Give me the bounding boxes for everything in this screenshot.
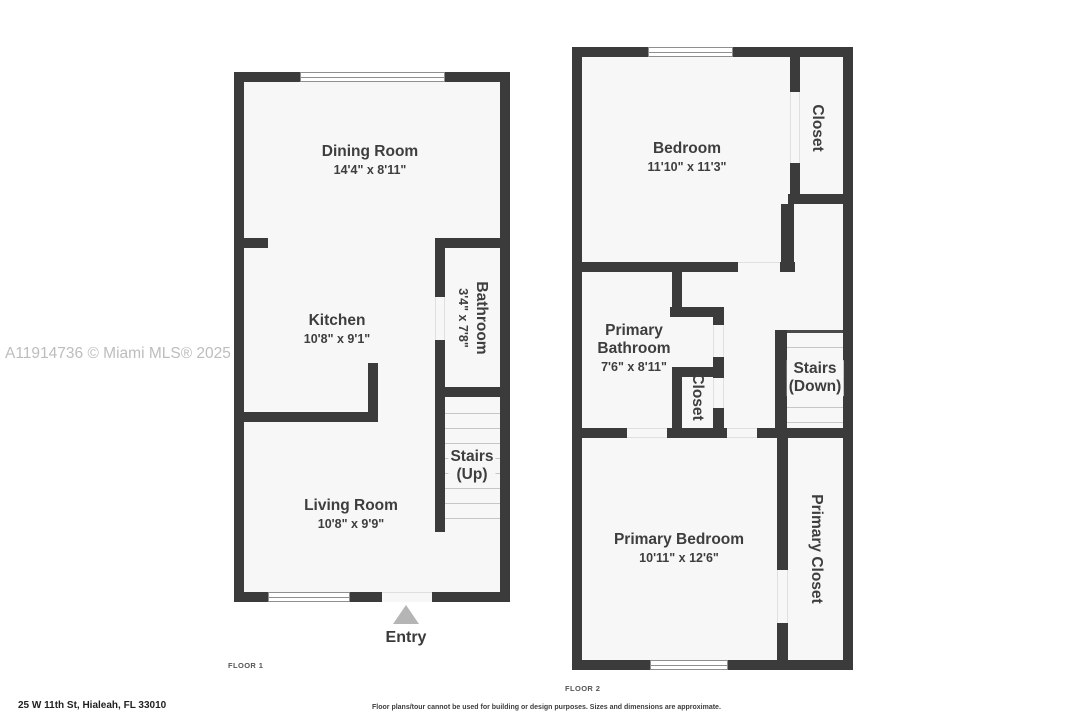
- room-name: Closet: [688, 373, 706, 420]
- room-name: Bathroom: [472, 281, 490, 354]
- stairs-direction: (Down): [787, 378, 844, 396]
- room-name: Primary Bathroom: [591, 322, 677, 358]
- floor2-caption: FLOOR 2: [565, 684, 600, 693]
- stairs-direction: (Up): [448, 466, 495, 484]
- wall-segment: [775, 330, 787, 438]
- wall-segment: [234, 238, 268, 248]
- room-label-bedroom: Bedroom 11'10" x 11'3": [648, 140, 727, 174]
- wall-segment: [432, 592, 510, 602]
- wall-segment: [368, 363, 378, 422]
- room-label-primary-bathroom: Primary Bathroom 7'6" x 8'11": [591, 322, 677, 374]
- wall-segment: [777, 438, 788, 570]
- door-threshold-line: [738, 262, 780, 263]
- room-name: Primary Bedroom: [614, 531, 744, 549]
- wall-segment: [788, 194, 853, 204]
- wall-segment: [350, 592, 382, 602]
- wall-segment: [500, 72, 510, 602]
- wall-segment: [572, 428, 627, 438]
- room-label-closet-top: Closet: [808, 104, 826, 151]
- door-threshold-line: [727, 437, 757, 438]
- wall-segment: [435, 387, 510, 397]
- wall-segment: [234, 412, 378, 422]
- floor1-caption: FLOOR 1: [228, 661, 263, 670]
- room-name: Primary Closet: [807, 494, 825, 603]
- room-dims: 14'4" x 8'11": [322, 163, 418, 177]
- room-label-kitchen: Kitchen 10'8" x 9'1": [304, 312, 370, 346]
- door-jamb-line: [435, 297, 436, 340]
- wall-segment: [777, 623, 788, 670]
- room-name: Closet: [808, 104, 826, 151]
- room-name: Kitchen: [304, 312, 370, 330]
- wall-segment: [572, 660, 650, 670]
- room-dims: 11'10" x 11'3": [648, 160, 727, 174]
- entry-arrow-icon: [393, 605, 419, 624]
- wall-segment: [435, 248, 445, 297]
- door-jamb-line: [444, 297, 445, 340]
- wall-segment: [234, 592, 268, 602]
- window: [650, 660, 728, 670]
- stairs-name: Stairs: [448, 448, 495, 466]
- wall-segment: [790, 163, 800, 197]
- door-threshold-line: [627, 437, 667, 438]
- wall-segment: [234, 72, 300, 82]
- mls-watermark: A11914736 © Miami MLS® 2025: [5, 345, 231, 363]
- wall-segment: [843, 47, 853, 670]
- property-address: 25 W 11th St, Hialeah, FL 33010: [18, 700, 166, 711]
- wall-segment: [572, 47, 648, 57]
- entry-label: Entry: [386, 629, 427, 647]
- room-dims: 10'8" x 9'1": [304, 332, 370, 346]
- window: [648, 47, 733, 57]
- room-dims: 10'8" x 9'9": [304, 517, 398, 531]
- room-dims: 10'11" x 12'6": [614, 551, 744, 565]
- door-jamb-line: [723, 325, 724, 357]
- floor2-plan: Bedroom 11'10" x 11'3" Closet Primary Ba…: [572, 47, 853, 670]
- floorplan-canvas: A11914736 © Miami MLS® 2025 Dining Room …: [0, 0, 1081, 720]
- wall-segment: [445, 72, 510, 82]
- room-label-dining-room: Dining Room 14'4" x 8'11": [322, 143, 418, 177]
- door-jamb-line: [787, 570, 788, 623]
- window: [268, 592, 350, 602]
- room-dims: 3'4" x 7'8": [456, 281, 470, 354]
- stairs-name: Stairs: [787, 360, 844, 378]
- floor1-plan: Dining Room 14'4" x 8'11" Kitchen 10'8" …: [234, 72, 510, 602]
- wall-segment: [572, 262, 738, 272]
- wall-segment: [713, 307, 724, 325]
- disclaimer-text: Floor plans/tour cannot be used for buil…: [372, 704, 721, 711]
- wall-segment: [435, 397, 445, 532]
- door-threshold-line: [627, 428, 667, 429]
- room-label-living-room: Living Room 10'8" x 9'9": [304, 497, 398, 531]
- door-threshold-line: [727, 428, 757, 429]
- wall-segment: [733, 47, 853, 57]
- wall-segment: [572, 47, 582, 670]
- room-label-primary-closet: Primary Closet: [807, 494, 825, 603]
- door-jamb-line: [777, 570, 778, 623]
- door-jamb-line: [723, 378, 724, 408]
- wall-segment: [757, 428, 853, 438]
- stairs-down-label: Stairs (Down): [787, 360, 844, 396]
- wall-segment: [781, 204, 794, 272]
- wall-segment: [667, 428, 727, 438]
- room-label-primary-bedroom: Primary Bedroom 10'11" x 12'6": [614, 531, 744, 565]
- stairs-up-label: Stairs (Up): [448, 448, 495, 484]
- room-dims: 7'6" x 8'11": [591, 360, 677, 374]
- wall-segment: [435, 340, 445, 392]
- window: [300, 72, 445, 82]
- wall-segment: [728, 660, 853, 670]
- door-jamb-line: [713, 325, 714, 357]
- door-jamb-line: [790, 92, 791, 163]
- room-label-closet-middle: Closet: [688, 373, 706, 420]
- door-threshold-line: [382, 592, 432, 593]
- room-name: Living Room: [304, 497, 398, 515]
- wall-segment: [790, 57, 800, 92]
- wall-segment: [435, 238, 510, 248]
- room-name: Dining Room: [322, 143, 418, 161]
- door-jamb-line: [799, 92, 800, 163]
- wall-segment: [234, 72, 244, 602]
- door-jamb-line: [713, 378, 714, 408]
- room-label-bathroom: Bathroom 3'4" x 7'8": [456, 281, 490, 354]
- room-name: Bedroom: [648, 140, 727, 158]
